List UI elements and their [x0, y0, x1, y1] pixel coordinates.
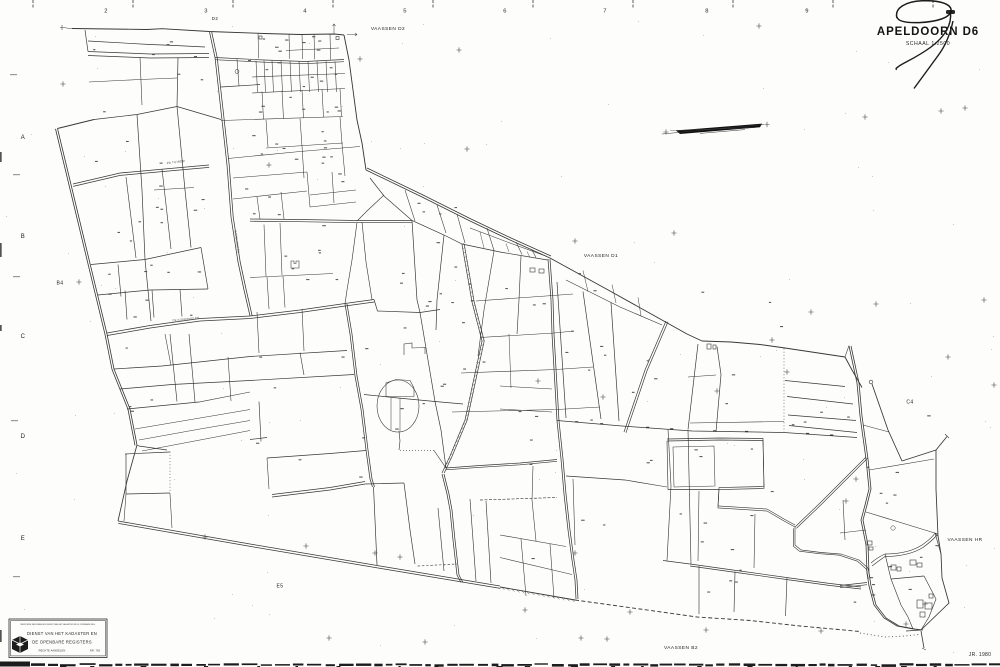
svg-text:NR. 756: NR. 756: [90, 649, 101, 653]
svg-text:7: 7: [603, 9, 607, 15]
svg-text:3: 3: [204, 9, 208, 15]
svg-text:JR. 1980: JR. 1980: [969, 652, 991, 658]
svg-text:VAASSEN HR: VAASSEN HR: [947, 537, 982, 543]
svg-text:DIENST VAN HET KADASTER EN: DIENST VAN HET KADASTER EN: [27, 631, 97, 636]
svg-text:9: 9: [805, 9, 809, 15]
svg-text:4: 4: [303, 9, 307, 15]
svg-text:E: E: [21, 536, 25, 542]
svg-text:B4: B4: [57, 281, 64, 287]
svg-text:E5: E5: [277, 584, 284, 590]
svg-text:D: D: [21, 434, 26, 440]
svg-text:RECHTE AANDELEN: RECHTE AANDELEN: [39, 649, 66, 653]
svg-text:C4: C4: [906, 400, 913, 406]
svg-text:VAASSEN D2: VAASSEN D2: [371, 26, 405, 32]
svg-text:C: C: [21, 334, 26, 340]
svg-text:5: 5: [403, 9, 407, 15]
svg-text:6: 6: [503, 9, 507, 15]
svg-text:8: 8: [705, 9, 709, 15]
svg-text:2: 2: [104, 9, 108, 15]
svg-text:A: A: [21, 135, 25, 141]
svg-text:D2: D2: [212, 16, 219, 21]
svg-text:B: B: [21, 234, 25, 240]
svg-text:MINISTERIE VAN FINANCIEN DIENS: MINISTERIE VAN FINANCIEN DIENST VAN HET …: [21, 623, 96, 626]
svg-text:VAASSEN B2: VAASSEN B2: [664, 645, 698, 651]
svg-text:APELDOORN D6: APELDOORN D6: [877, 26, 979, 38]
svg-text:DE OPENBARE REGISTERS: DE OPENBARE REGISTERS: [32, 640, 92, 645]
svg-text:VAASSEN D1: VAASSEN D1: [584, 253, 618, 259]
